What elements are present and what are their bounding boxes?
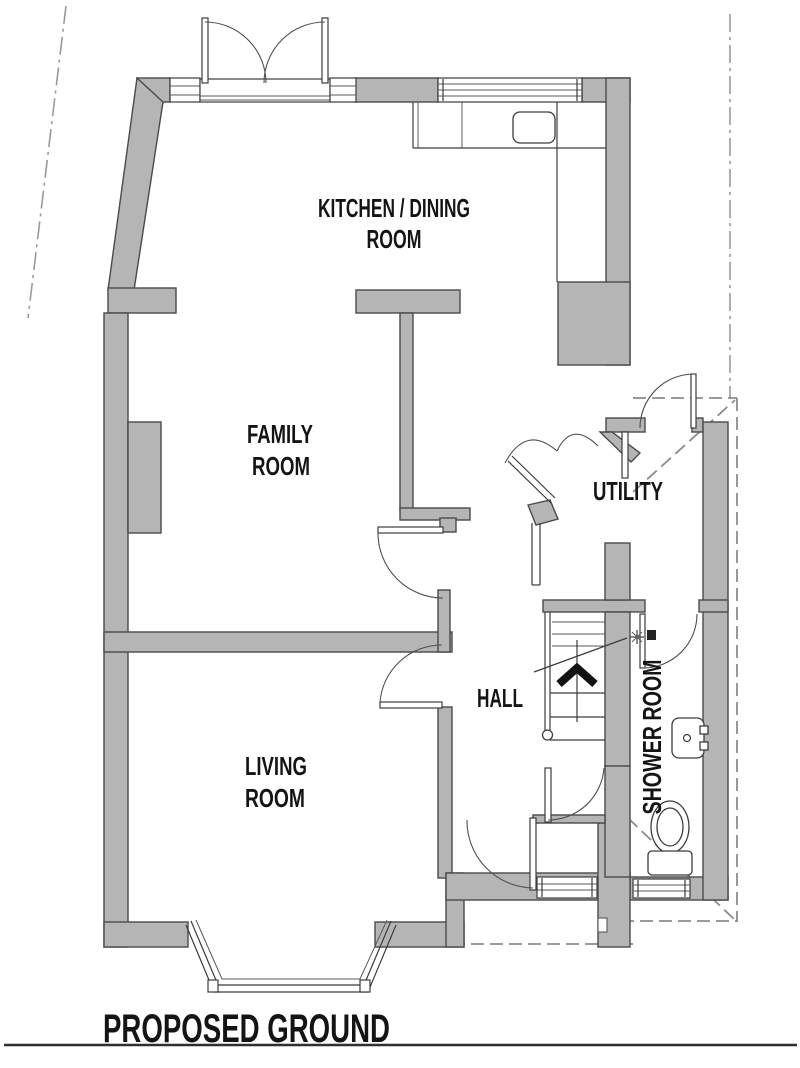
wall-left-jog <box>108 288 176 313</box>
door-living-room <box>380 645 442 708</box>
newel-post <box>543 730 553 740</box>
wall-shower-west <box>605 612 630 877</box>
wall-utility-chamfer <box>600 432 640 462</box>
window-top-2 <box>330 78 356 102</box>
room-label-family-line1: FAMILY <box>247 419 313 449</box>
kitchen-counter <box>413 102 606 282</box>
wall-t-stem <box>400 313 413 510</box>
floor-plan-svg: KITCHEN / DINING ROOM FAMILY ROOM UTILIT… <box>0 0 800 1068</box>
room-label-living-line1: LIVING <box>245 751 307 781</box>
wall-utility-north-left <box>606 418 645 432</box>
room-label-kitchen-line1: KITCHEN / DINING <box>318 193 470 223</box>
wall-left-slanted <box>108 78 163 290</box>
door-utility-external <box>640 374 696 428</box>
wall-left <box>104 313 128 947</box>
wall-angled-stub <box>528 500 558 525</box>
wall-living-right-lower <box>438 707 452 878</box>
french-doors <box>202 18 328 83</box>
room-label-utility: UTILITY <box>593 476 663 506</box>
wall-outline-existing <box>532 523 540 585</box>
room-label-hall: HALL <box>477 683 523 713</box>
wall-utility-south-right <box>699 600 728 612</box>
room-label-kitchen-line2: ROOM <box>367 224 422 254</box>
wall-t-return <box>400 508 470 520</box>
room-label-shower: SHOWER ROOM <box>637 660 667 815</box>
room-label-family-line2: ROOM <box>252 451 310 481</box>
pier-notch <box>598 918 607 932</box>
wall-kitchen-utility-stub <box>558 282 630 365</box>
wall-east <box>703 422 728 900</box>
wall-utility-south-left <box>543 600 645 612</box>
window-kitchen <box>438 78 582 102</box>
wall-bottom-left <box>104 922 188 947</box>
room-label-living-line2: ROOM <box>245 783 305 813</box>
wall-t-top <box>356 290 460 313</box>
window-hall-front <box>537 877 597 898</box>
wash-basin <box>672 718 708 758</box>
kitchen-sink <box>513 112 555 143</box>
french-door-threshold <box>200 79 330 102</box>
wall-living-family-divider <box>104 632 452 652</box>
window-top-1 <box>170 78 200 102</box>
wall-top-middle <box>355 78 438 102</box>
wall-utility-vestibule-stub <box>605 543 630 600</box>
window-shower-front <box>633 879 690 898</box>
boundary-dashed-line-left <box>28 6 66 318</box>
bay-window <box>186 920 396 992</box>
door-front <box>545 768 604 822</box>
door-family-room <box>378 527 443 598</box>
floor-plan-page: KITCHEN / DINING ROOM FAMILY ROOM UTILIT… <box>0 0 800 1068</box>
wall-living-right-upper <box>438 590 450 652</box>
chimney-breast <box>128 422 161 533</box>
